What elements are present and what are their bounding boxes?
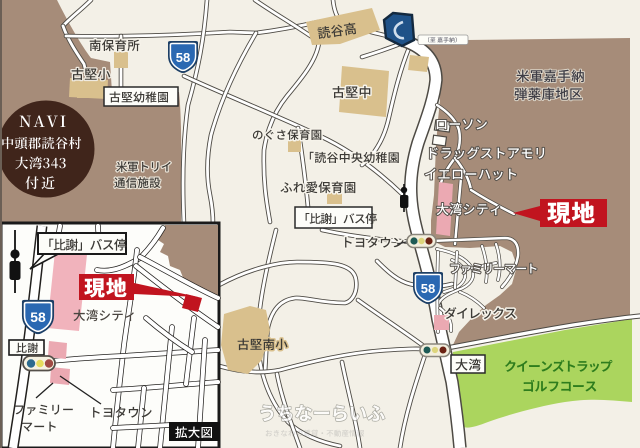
svg-text:58: 58	[421, 281, 435, 296]
svg-text:58: 58	[30, 309, 46, 325]
svg-text:58: 58	[176, 50, 190, 65]
